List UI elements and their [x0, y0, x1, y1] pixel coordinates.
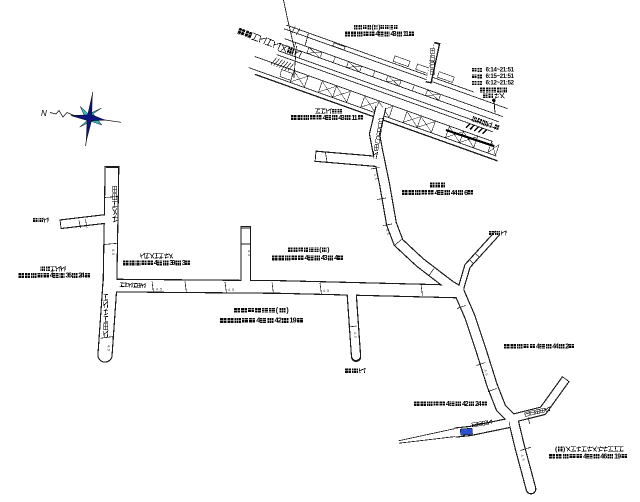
svg-text:4.5: 4.5 [247, 250, 251, 256]
svg-text:): ) [286, 307, 288, 314]
svg-text:43: 43 [390, 29, 396, 38]
svg-text:4: 4 [446, 401, 450, 408]
svg-text:44: 44 [451, 188, 459, 197]
svg-text:4.5: 4.5 [353, 332, 358, 338]
svg-text:6:14~21:51: 6:14~21:51 [486, 68, 515, 74]
svg-text:42: 42 [275, 316, 283, 325]
svg-text:24: 24 [78, 271, 85, 280]
svg-text:4.5: 4.5 [111, 249, 115, 255]
svg-text:42: 42 [462, 401, 469, 408]
svg-text:N: N [41, 109, 47, 118]
svg-text:44: 44 [552, 343, 559, 350]
svg-text:43: 43 [338, 113, 345, 122]
svg-text:19: 19 [289, 316, 297, 325]
svg-text:4.5: 4.5 [323, 289, 329, 293]
svg-text:4.5: 4.5 [156, 288, 162, 292]
svg-text:6:15~21:51: 6:15~21:51 [486, 74, 515, 80]
svg-text:19: 19 [614, 453, 621, 460]
svg-text:46: 46 [600, 453, 607, 460]
svg-text:11: 11 [403, 29, 409, 38]
svg-text:11: 11 [351, 113, 358, 122]
svg-text:4: 4 [536, 343, 540, 350]
svg-text:4.5: 4.5 [228, 288, 234, 292]
svg-text:36: 36 [66, 271, 73, 280]
svg-text:24: 24 [475, 401, 482, 408]
svg-text:2: 2 [565, 343, 569, 350]
svg-text:43: 43 [321, 253, 328, 262]
svg-text:4: 4 [583, 453, 587, 460]
svg-text:4.5: 4.5 [107, 345, 111, 351]
svg-text:6: 6 [464, 188, 468, 197]
svg-text:): ) [563, 446, 565, 453]
svg-text:39: 39 [169, 258, 175, 267]
svg-text:6:12~21:52: 6:12~21:52 [486, 81, 515, 87]
